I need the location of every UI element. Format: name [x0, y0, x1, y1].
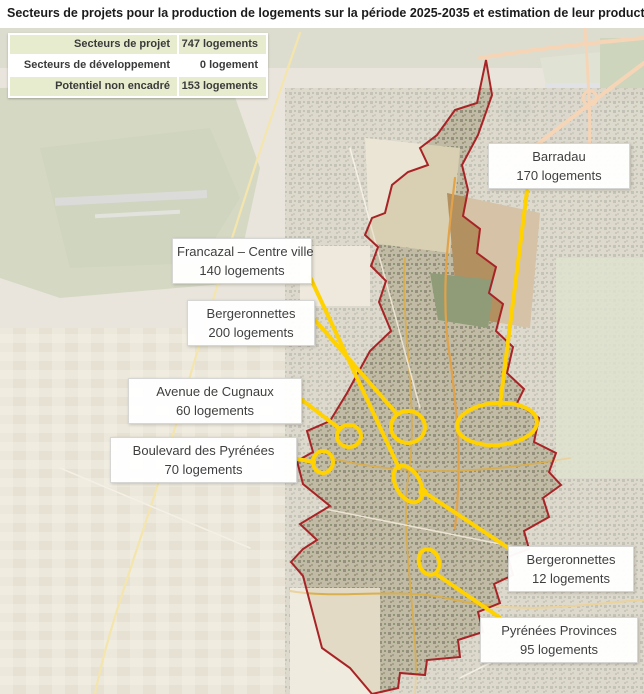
map-canvas: Secteurs de projet 747 logements Secteur… [0, 28, 644, 694]
sector-count: 200 logements [192, 323, 310, 342]
legend-row: Secteurs de projet 747 logements [10, 35, 266, 54]
sector-count: 12 logements [513, 569, 629, 588]
sector-dot-bergeronnettes-12 [419, 488, 428, 497]
map-label-francazal-centre-ville: Francazal – Centre ville 140 logements [172, 238, 312, 284]
sector-count: 95 logements [485, 640, 633, 659]
legend-value: 747 logements [179, 35, 266, 54]
sector-name: Boulevard des Pyrénées [115, 441, 292, 460]
green-patch-1 [430, 273, 495, 328]
legend: Secteurs de projet 747 logements Secteur… [8, 33, 268, 98]
sector-count: 140 logements [177, 261, 307, 280]
map-label-pyrenees-provinces: Pyrénées Provinces 95 logements [480, 617, 638, 663]
legend-value: 153 logements [179, 77, 266, 96]
sector-name: Avenue de Cugnaux [133, 382, 297, 401]
legend-label: Secteurs de projet [10, 35, 179, 54]
map-label-barradau: Barradau 170 logements [488, 143, 630, 189]
sector-name: Francazal – Centre ville [177, 242, 307, 261]
sector-name: Barradau [493, 147, 625, 166]
sector-count: 170 logements [493, 166, 625, 185]
sector-name: Bergeronnettes [192, 304, 310, 323]
map-label-boulevard-des-pyrenees: Boulevard des Pyrénées 70 logements [110, 437, 297, 483]
page-title: Secteurs de projets pour la production d… [0, 0, 644, 28]
legend-row: Potentiel non encadré 153 logements [10, 77, 266, 96]
map-label-bergeronnettes-12: Bergeronnettes 12 logements [508, 546, 634, 592]
legend-label: Secteurs de développement futur [10, 56, 179, 75]
legend-value: 0 logement [179, 56, 266, 75]
map-label-avenue-de-cugnaux: Avenue de Cugnaux 60 logements [128, 378, 302, 424]
map-label-bergeronnettes-200: Bergeronnettes 200 logements [187, 300, 315, 346]
legend-row: Secteurs de développement futur 0 logeme… [10, 56, 266, 75]
sector-count: 70 logements [115, 460, 292, 479]
sector-name: Pyrénées Provinces [485, 621, 633, 640]
legend-label: Potentiel non encadré [10, 77, 179, 96]
satellite-basemap [0, 28, 644, 694]
sector-count: 60 logements [133, 401, 297, 420]
sector-name: Bergeronnettes [513, 550, 629, 569]
